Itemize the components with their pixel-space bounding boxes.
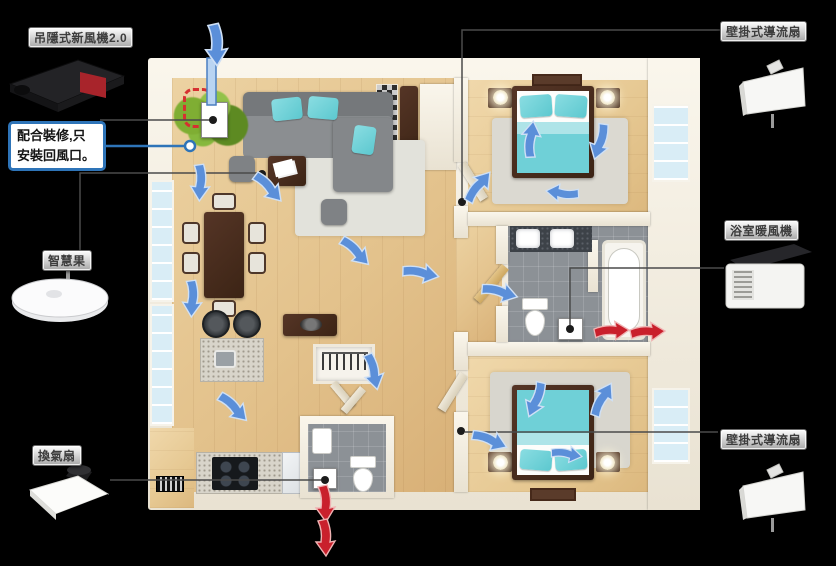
connector-lines bbox=[80, 30, 724, 484]
label-wall-fan-top: 壁掛式導流扇 bbox=[720, 21, 807, 42]
callout-line1: 配合裝修,只 bbox=[17, 126, 97, 146]
supply-airflow-arrow bbox=[545, 182, 581, 205]
label-exhaust-fan-text: 換氣扇 bbox=[38, 447, 76, 464]
wall-fan-top-product-icon bbox=[733, 56, 819, 130]
label-exhaust-fan: 換氣扇 bbox=[32, 445, 82, 466]
sensor-product-icon bbox=[6, 268, 112, 330]
supply-airflow-arrow bbox=[584, 379, 620, 420]
label-wall-fan-bottom-text: 壁掛式導流扇 bbox=[726, 431, 801, 448]
supply-airflow-arrow bbox=[549, 443, 583, 465]
supply-airflow-arrow bbox=[361, 352, 386, 392]
exhaust-airflow-arrow bbox=[594, 322, 629, 340]
supply-airflow-arrow bbox=[520, 379, 553, 421]
bath-heater-product-icon bbox=[716, 238, 816, 312]
label-bath-heater: 浴室暖風機 bbox=[724, 220, 799, 241]
bath-heater-line-endpoint-dot bbox=[566, 325, 574, 333]
renovation-callout: 配合裝修,只 安裝回風口。 bbox=[8, 121, 106, 171]
exhaust-fan-line-endpoint-dot bbox=[321, 476, 329, 484]
exhaust-fan-product-icon bbox=[22, 462, 118, 524]
exhaust-airflow-arrow bbox=[630, 323, 665, 341]
supply-airflow-arrow bbox=[181, 279, 203, 318]
label-hrv-text: 吊隱式新風機2.0 bbox=[34, 29, 127, 46]
ventilation-floorplan-diagram: 吊隱式新風機2.0 配合裝修,只 安裝回風口。 智慧果 換氣扇 壁掛式導流扇 bbox=[0, 0, 836, 566]
label-sensor-text: 智慧果 bbox=[48, 252, 86, 269]
exhaust-airflow-arrow bbox=[316, 485, 335, 522]
label-wall-fan-top-text: 壁掛式導流扇 bbox=[726, 23, 801, 40]
wall-fan-bottom-line-endpoint-dot bbox=[457, 427, 465, 435]
wall-fan-bottom-product-icon bbox=[733, 460, 819, 534]
label-bath-heater-text: 浴室暖風機 bbox=[730, 222, 793, 239]
airflow-arrows bbox=[181, 23, 665, 556]
sensor-line bbox=[80, 173, 258, 251]
label-wall-fan-bottom: 壁掛式導流扇 bbox=[720, 429, 807, 450]
supply-airflow-arrow bbox=[518, 120, 543, 160]
hrv-product-icon bbox=[6, 50, 128, 120]
callout-line2: 安裝回風口。 bbox=[17, 146, 97, 166]
bath-heater-line bbox=[570, 268, 724, 326]
label-sensor: 智慧果 bbox=[42, 250, 92, 271]
hrv-line-endpoint-dot bbox=[209, 116, 217, 124]
supply-airflow-arrow bbox=[189, 163, 211, 202]
supply-airflow-arrow bbox=[400, 259, 440, 286]
fresh-air-duct bbox=[207, 58, 216, 105]
supply-airflow-arrow bbox=[214, 387, 253, 427]
callout-line-endpoint-ring bbox=[185, 141, 195, 151]
supply-airflow-arrow bbox=[469, 423, 511, 456]
supply-airflow-arrow bbox=[336, 231, 375, 271]
label-hrv: 吊隱式新風機2.0 bbox=[28, 27, 133, 48]
wall-fan-top-line bbox=[462, 30, 720, 199]
supply-airflow-arrow bbox=[479, 277, 520, 307]
exhaust-airflow-arrow bbox=[316, 519, 335, 556]
supply-airflow-arrow bbox=[585, 121, 616, 162]
